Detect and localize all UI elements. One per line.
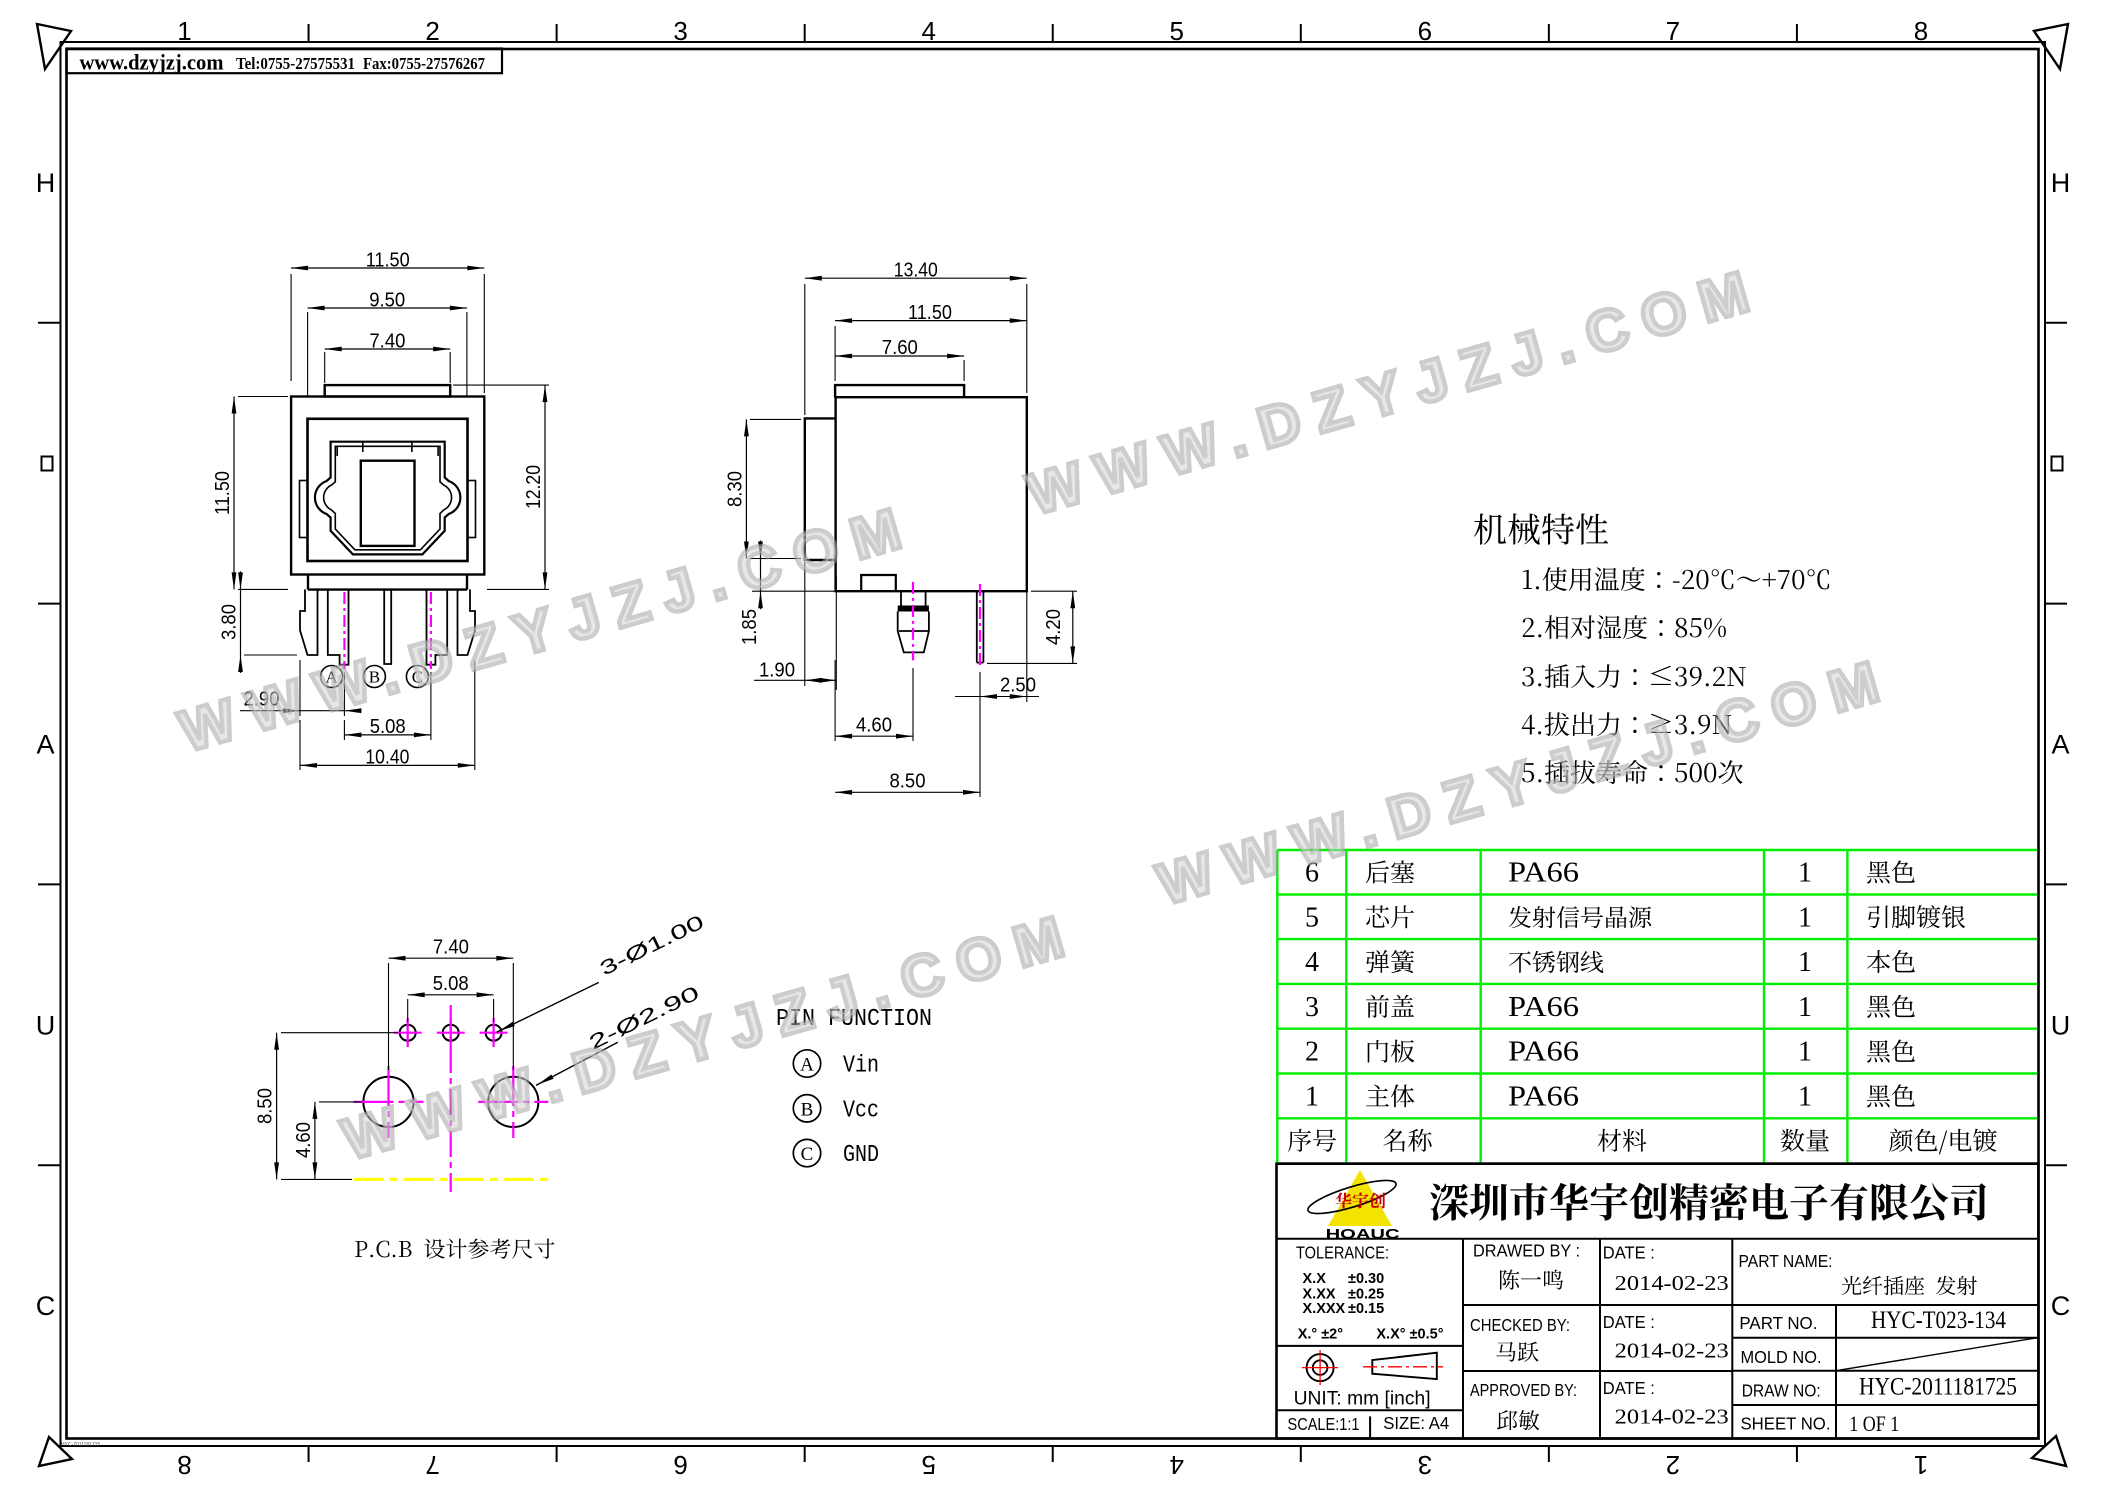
- svg-text:8: 8: [177, 1450, 191, 1480]
- svg-text:2014-02-23: 2014-02-23: [1615, 1405, 1729, 1429]
- svg-text:DATE :: DATE :: [1603, 1243, 1655, 1263]
- svg-text:www.dzyjzj.com: www.dzyjzj.com: [80, 50, 224, 75]
- svg-text:2: 2: [425, 16, 439, 46]
- svg-text:7: 7: [425, 1450, 439, 1480]
- svg-text:4: 4: [921, 16, 935, 46]
- svg-text:PART NO.: PART NO.: [1739, 1313, 1817, 1333]
- svg-text:8.30: 8.30: [724, 471, 746, 507]
- svg-text:C: C: [2051, 1291, 2071, 1321]
- svg-text:7.40: 7.40: [433, 937, 469, 959]
- svg-text:1 OF 1: 1 OF 1: [1849, 1411, 1899, 1436]
- svg-text:4.60: 4.60: [856, 715, 892, 737]
- svg-text:1: 1: [1798, 1081, 1812, 1112]
- svg-text:±0.30: ±0.30: [1348, 1271, 1384, 1287]
- svg-text:HYC-2011181725: HYC-2011181725: [61, 1442, 101, 1448]
- svg-text:DRAW NO:: DRAW NO:: [1742, 1381, 1821, 1401]
- svg-text:1: 1: [1305, 1081, 1319, 1112]
- svg-text:DATE :: DATE :: [1603, 1312, 1655, 1332]
- svg-text:8.50: 8.50: [890, 771, 926, 793]
- svg-text:11.50: 11.50: [908, 302, 952, 324]
- svg-text:Vcc: Vcc: [843, 1097, 879, 1124]
- svg-text:DRAWED BY :: DRAWED BY :: [1473, 1241, 1580, 1261]
- svg-text:HOAUC: HOAUC: [1326, 1225, 1400, 1241]
- svg-text:B: B: [801, 1099, 814, 1120]
- svg-text:4.60: 4.60: [293, 1122, 315, 1158]
- svg-text:7: 7: [1666, 16, 1680, 46]
- svg-text:4: 4: [1305, 947, 1319, 978]
- svg-text:3: 3: [1305, 992, 1319, 1023]
- svg-text:5: 5: [921, 1450, 935, 1480]
- svg-text:HYC-T023-134: HYC-T023-134: [1871, 1307, 2006, 1334]
- svg-text:MOLD NO.: MOLD NO.: [1741, 1347, 1822, 1367]
- svg-text:U: U: [36, 1010, 56, 1040]
- svg-text:1: 1: [1798, 947, 1812, 978]
- svg-text:4.20: 4.20: [1043, 609, 1065, 645]
- svg-text:3: 3: [673, 16, 687, 46]
- svg-text:CHECKED BY:: CHECKED BY:: [1470, 1315, 1570, 1335]
- svg-text:1: 1: [177, 16, 191, 46]
- svg-text:A: A: [36, 730, 54, 760]
- svg-text:GND: GND: [843, 1142, 879, 1169]
- svg-text:6: 6: [673, 1450, 687, 1480]
- svg-text:1: 1: [1798, 902, 1812, 933]
- svg-text:DATE :: DATE :: [1603, 1378, 1655, 1398]
- svg-text:H: H: [36, 168, 56, 198]
- svg-text:TOLERANCE:: TOLERANCE:: [1296, 1243, 1389, 1263]
- svg-text:X.X° ±0.5°: X.X° ±0.5°: [1376, 1327, 1443, 1343]
- svg-text:12.20: 12.20: [523, 465, 545, 509]
- svg-text:13.40: 13.40: [894, 260, 938, 282]
- svg-text:±0.15: ±0.15: [1348, 1301, 1384, 1317]
- svg-text:A: A: [2051, 730, 2069, 760]
- svg-text:APPROVED BY:: APPROVED BY:: [1470, 1380, 1577, 1400]
- svg-text:1.90: 1.90: [759, 660, 795, 682]
- svg-text:HYC-2011181725: HYC-2011181725: [1859, 1374, 2017, 1401]
- svg-text:UNIT: mm [inch]: UNIT: mm [inch]: [1294, 1389, 1431, 1410]
- svg-text:5: 5: [1170, 16, 1184, 46]
- svg-text:X.° ±2°: X.° ±2°: [1298, 1327, 1344, 1343]
- svg-text:1.85: 1.85: [739, 609, 761, 645]
- svg-text:X.XXX: X.XXX: [1303, 1301, 1346, 1317]
- svg-text:H: H: [2051, 168, 2071, 198]
- svg-text:2.50: 2.50: [1000, 675, 1036, 697]
- svg-text:2014-02-23: 2014-02-23: [1615, 1271, 1729, 1295]
- svg-text:2: 2: [1666, 1450, 1680, 1480]
- svg-text:3.80: 3.80: [219, 604, 241, 640]
- svg-text:U: U: [2051, 1010, 2071, 1040]
- svg-text:X.X: X.X: [1303, 1271, 1327, 1287]
- svg-text:11.50: 11.50: [212, 471, 234, 515]
- svg-text:6: 6: [1418, 16, 1432, 46]
- svg-text:PART NAME:: PART NAME:: [1739, 1251, 1833, 1271]
- svg-text:5.08: 5.08: [370, 716, 406, 738]
- svg-text:5.08: 5.08: [433, 973, 469, 995]
- svg-text:8: 8: [1914, 16, 1928, 46]
- svg-text:SIZE: A4: SIZE: A4: [1383, 1413, 1449, 1433]
- svg-text:9.50: 9.50: [369, 290, 405, 312]
- svg-text:PA66: PA66: [1508, 991, 1579, 1023]
- svg-text:C: C: [801, 1144, 814, 1165]
- svg-text:C: C: [36, 1291, 56, 1321]
- svg-text:2014-02-23: 2014-02-23: [1615, 1339, 1729, 1363]
- svg-text:5: 5: [1305, 902, 1319, 933]
- svg-text:3: 3: [1418, 1450, 1432, 1480]
- svg-text:7.60: 7.60: [882, 337, 918, 359]
- svg-text:4: 4: [1170, 1450, 1184, 1480]
- svg-text:PA66: PA66: [1508, 857, 1579, 889]
- svg-text:A: A: [800, 1055, 814, 1076]
- svg-text:Fax:0755-27576267: Fax:0755-27576267: [363, 54, 485, 73]
- svg-text:11.50: 11.50: [366, 250, 410, 272]
- svg-text:1: 1: [1798, 992, 1812, 1023]
- svg-text:SCALE:1:1: SCALE:1:1: [1288, 1414, 1360, 1434]
- svg-text:PA66: PA66: [1508, 1080, 1579, 1112]
- svg-text:1: 1: [1798, 858, 1812, 889]
- svg-text:Vin: Vin: [843, 1053, 879, 1080]
- svg-text:7.40: 7.40: [369, 331, 405, 353]
- svg-text:SHEET NO.: SHEET NO.: [1741, 1414, 1831, 1434]
- svg-text:PA66: PA66: [1508, 1036, 1579, 1068]
- svg-text:Tel:0755-27575531: Tel:0755-27575531: [236, 54, 355, 73]
- svg-text:10.40: 10.40: [365, 747, 409, 769]
- svg-text:8.50: 8.50: [255, 1088, 277, 1124]
- svg-text:1: 1: [1798, 1037, 1812, 1068]
- svg-text:2: 2: [1305, 1037, 1319, 1068]
- svg-text:1: 1: [1914, 1450, 1928, 1480]
